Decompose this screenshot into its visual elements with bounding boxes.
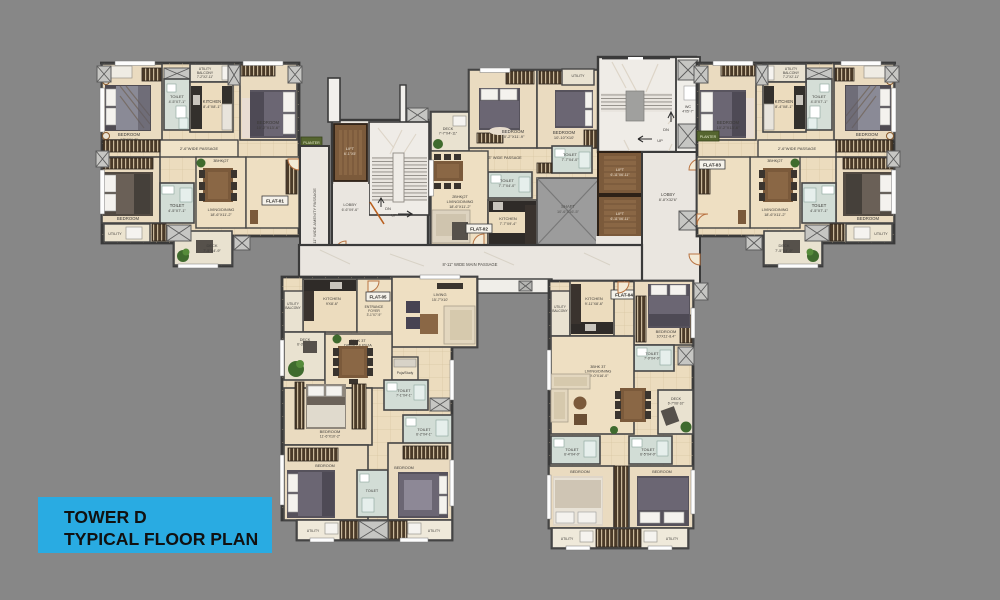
svg-text:UTILITY: UTILITY bbox=[666, 537, 679, 541]
svg-text:DN: DN bbox=[663, 127, 669, 132]
svg-text:6'-11"X6'-11": 6'-11"X6'-11" bbox=[610, 217, 630, 221]
svg-text:KITCHEN: KITCHEN bbox=[203, 99, 221, 104]
svg-text:6'-2"X4'-1": 6'-2"X4'-1" bbox=[416, 433, 433, 437]
svg-text:FLAT-05: FLAT-05 bbox=[370, 295, 388, 300]
svg-text:7'-5"X4'-9": 7'-5"X4'-9" bbox=[775, 249, 793, 253]
svg-text:BEDROOM: BEDROOM bbox=[570, 470, 590, 474]
svg-text:6'-5"X4'-0": 6'-5"X4'-0" bbox=[640, 453, 657, 457]
svg-text:LOBBY: LOBBY bbox=[661, 192, 675, 197]
svg-text:BALCONY: BALCONY bbox=[552, 309, 568, 313]
svg-text:10'X11'-8.4": 10'X11'-8.4" bbox=[657, 335, 677, 339]
svg-text:3BHK 3T: 3BHK 3T bbox=[590, 365, 606, 369]
svg-text:4'-11" WIDE AMENITY PASSAGE: 4'-11" WIDE AMENITY PASSAGE bbox=[312, 188, 317, 248]
svg-text:8'-8"X32'6": 8'-8"X32'6" bbox=[659, 198, 678, 202]
svg-text:TOILET: TOILET bbox=[812, 203, 827, 208]
svg-text:UTILITY: UTILITY bbox=[874, 232, 888, 236]
svg-text:Puja/Study: Puja/Study bbox=[397, 371, 414, 375]
svg-text:UTILITY: UTILITY bbox=[571, 74, 585, 78]
svg-text:DECK: DECK bbox=[778, 243, 789, 248]
svg-text:10'-2"X11'-9": 10'-2"X11'-9" bbox=[502, 134, 525, 139]
svg-text:BEDROOM: BEDROOM bbox=[117, 216, 140, 221]
svg-text:7'-9"X4'-0": 7'-9"X4'-0" bbox=[644, 357, 661, 361]
svg-text:3BHK(2T: 3BHK(2T bbox=[213, 159, 229, 163]
svg-text:3BHK(2T: 3BHK(2T bbox=[767, 159, 783, 163]
svg-text:TOILET: TOILET bbox=[565, 448, 579, 452]
svg-text:PLANTER: PLANTER bbox=[700, 135, 717, 139]
svg-text:FLAT-01: FLAT-01 bbox=[266, 199, 284, 204]
svg-text:2'-6"WIDE PASSAGE: 2'-6"WIDE PASSAGE bbox=[180, 146, 219, 151]
svg-text:6'-1"X5': 6'-1"X5' bbox=[344, 152, 357, 156]
svg-text:TOWER D: TOWER D bbox=[64, 507, 147, 527]
svg-text:KITCHEN: KITCHEN bbox=[585, 296, 603, 301]
svg-text:4'-5"X7'-1": 4'-5"X7'-1" bbox=[169, 100, 186, 104]
svg-text:BEDROOM: BEDROOM bbox=[394, 466, 414, 470]
svg-text:LIFT: LIFT bbox=[346, 146, 355, 151]
svg-text:8'-11" WIDE MAIN PASSAGE: 8'-11" WIDE MAIN PASSAGE bbox=[443, 262, 498, 267]
svg-text:KITCHEN: KITCHEN bbox=[499, 216, 517, 221]
svg-text:TOILET: TOILET bbox=[500, 178, 514, 183]
svg-text:BEDROOM: BEDROOM bbox=[656, 329, 677, 334]
svg-text:7'-1"X4'-1": 7'-1"X4'-1" bbox=[396, 394, 413, 398]
svg-text:TOILET: TOILET bbox=[366, 489, 379, 493]
svg-text:BEDROOM: BEDROOM bbox=[652, 470, 672, 474]
svg-text:LOBBY: LOBBY bbox=[343, 202, 357, 207]
svg-text:DECK: DECK bbox=[206, 243, 217, 248]
svg-text:7'-2"X2'-11": 7'-2"X2'-11" bbox=[783, 75, 799, 79]
svg-text:FLAT-02: FLAT-02 bbox=[470, 227, 488, 232]
svg-text:UTILITY: UTILITY bbox=[428, 529, 441, 533]
svg-text:2BHK(2T: 2BHK(2T bbox=[452, 195, 468, 199]
svg-text:LIVING: LIVING bbox=[433, 292, 446, 297]
svg-text:10'-2"X13'-6": 10'-2"X13'-6" bbox=[256, 125, 280, 130]
svg-text:7'-7"X4'-0": 7'-7"X4'-0" bbox=[562, 158, 579, 162]
svg-text:18'-6"X11'-2": 18'-6"X11'-2" bbox=[449, 205, 471, 209]
svg-text:TOILET: TOILET bbox=[641, 448, 655, 452]
svg-text:4'-5"X7'-1": 4'-5"X7'-1" bbox=[810, 209, 828, 213]
svg-text:3'-3" WIDE PASSAGE: 3'-3" WIDE PASSAGE bbox=[484, 156, 522, 160]
svg-text:6'-7"X8'-10": 6'-7"X8'-10" bbox=[668, 401, 685, 405]
svg-text:18'-6"X11'-2": 18'-6"X11'-2" bbox=[764, 213, 786, 217]
svg-text:11'-6"X10'-2": 11'-6"X10'-2" bbox=[320, 435, 341, 439]
svg-text:7'-7"X9'-4": 7'-7"X9'-4" bbox=[500, 222, 517, 226]
svg-text:SHAFT: SHAFT bbox=[561, 204, 575, 209]
svg-text:6'-11"X6'-11": 6'-11"X6'-11" bbox=[610, 173, 630, 177]
svg-text:2'-6"WIDE PASSAGE: 2'-6"WIDE PASSAGE bbox=[778, 146, 817, 151]
svg-text:TOILET: TOILET bbox=[645, 352, 659, 356]
svg-text:TOILET: TOILET bbox=[170, 94, 184, 99]
svg-text:BEDROOM: BEDROOM bbox=[857, 216, 880, 221]
svg-text:8'-4"X8'-1": 8'-4"X8'-1" bbox=[775, 105, 793, 109]
svg-text:KITCHEN: KITCHEN bbox=[323, 296, 341, 301]
svg-text:9'X8'-6": 9'X8'-6" bbox=[326, 302, 339, 306]
svg-text:3'-1"X7'-9": 3'-1"X7'-9" bbox=[367, 313, 382, 317]
svg-text:7'-7"X4'-11": 7'-7"X4'-11" bbox=[439, 132, 458, 136]
svg-text:10'-6"X16'-5": 10'-6"X16'-5" bbox=[557, 210, 580, 214]
svg-text:LIVING/DINING: LIVING/DINING bbox=[762, 208, 789, 212]
svg-text:FLAT-03: FLAT-03 bbox=[703, 163, 721, 168]
svg-text:UTILITY: UTILITY bbox=[561, 537, 574, 541]
svg-text:KITCHEN: KITCHEN bbox=[775, 99, 793, 104]
svg-text:TOILET: TOILET bbox=[812, 94, 826, 99]
svg-text:PLANTER: PLANTER bbox=[303, 141, 320, 145]
svg-text:8'-4"X8'-1": 8'-4"X8'-1" bbox=[203, 105, 221, 109]
svg-text:7'-5"X4'-9": 7'-5"X4'-9" bbox=[203, 249, 221, 253]
svg-text:10'-2"X13'-6": 10'-2"X13'-6" bbox=[716, 125, 740, 130]
svg-text:WC: WC bbox=[685, 105, 692, 109]
svg-text:DECK: DECK bbox=[671, 397, 682, 401]
svg-text:6'-6"X9'-6": 6'-6"X9'-6" bbox=[342, 208, 359, 212]
svg-text:18'-6"X11'-2": 18'-6"X11'-2" bbox=[210, 213, 232, 217]
svg-text:TOILET: TOILET bbox=[417, 428, 431, 432]
svg-text:6'-4"X4'-0": 6'-4"X4'-0" bbox=[564, 453, 581, 457]
svg-text:BEDROOM: BEDROOM bbox=[320, 429, 341, 434]
svg-text:10'-10"X10': 10'-10"X10' bbox=[554, 135, 575, 140]
svg-text:BALCONY: BALCONY bbox=[285, 306, 301, 310]
svg-text:7'-7"X4'-0": 7'-7"X4'-0" bbox=[499, 184, 516, 188]
svg-text:TOILET: TOILET bbox=[563, 152, 577, 157]
svg-text:15'-7"X10': 15'-7"X10' bbox=[432, 298, 449, 302]
svg-text:UTILITY: UTILITY bbox=[108, 232, 122, 236]
svg-text:UP: UP bbox=[391, 213, 397, 218]
svg-text:19'-0"X16'-0": 19'-0"X16'-0" bbox=[588, 374, 609, 378]
svg-text:4'X5'-7": 4'X5'-7" bbox=[682, 110, 694, 114]
svg-text:4'-5"X7'-1": 4'-5"X7'-1" bbox=[168, 209, 186, 213]
svg-text:LIVING/DINING: LIVING/DINING bbox=[585, 370, 612, 374]
svg-text:9'-11"X8'-6": 9'-11"X8'-6" bbox=[585, 302, 604, 306]
svg-text:DN: DN bbox=[385, 206, 391, 211]
svg-text:7'-2"X2'-11": 7'-2"X2'-11" bbox=[197, 75, 213, 79]
svg-text:BEDROOM: BEDROOM bbox=[315, 464, 335, 468]
svg-text:LIVING/DINING: LIVING/DINING bbox=[447, 200, 474, 204]
svg-text:TOILET: TOILET bbox=[170, 203, 185, 208]
svg-text:TYPICAL FLOOR PLAN: TYPICAL FLOOR PLAN bbox=[64, 529, 258, 549]
svg-text:4'-5"X7'-1": 4'-5"X7'-1" bbox=[811, 100, 828, 104]
svg-text:DECK: DECK bbox=[443, 127, 454, 131]
svg-text:TOILET: TOILET bbox=[397, 389, 411, 393]
svg-text:LIVING/DINING: LIVING/DINING bbox=[208, 208, 235, 212]
svg-text:LIFT: LIFT bbox=[616, 167, 625, 172]
svg-text:UP: UP bbox=[657, 138, 663, 143]
svg-text:UTILITY: UTILITY bbox=[307, 529, 320, 533]
svg-text:LIFT: LIFT bbox=[616, 211, 625, 216]
